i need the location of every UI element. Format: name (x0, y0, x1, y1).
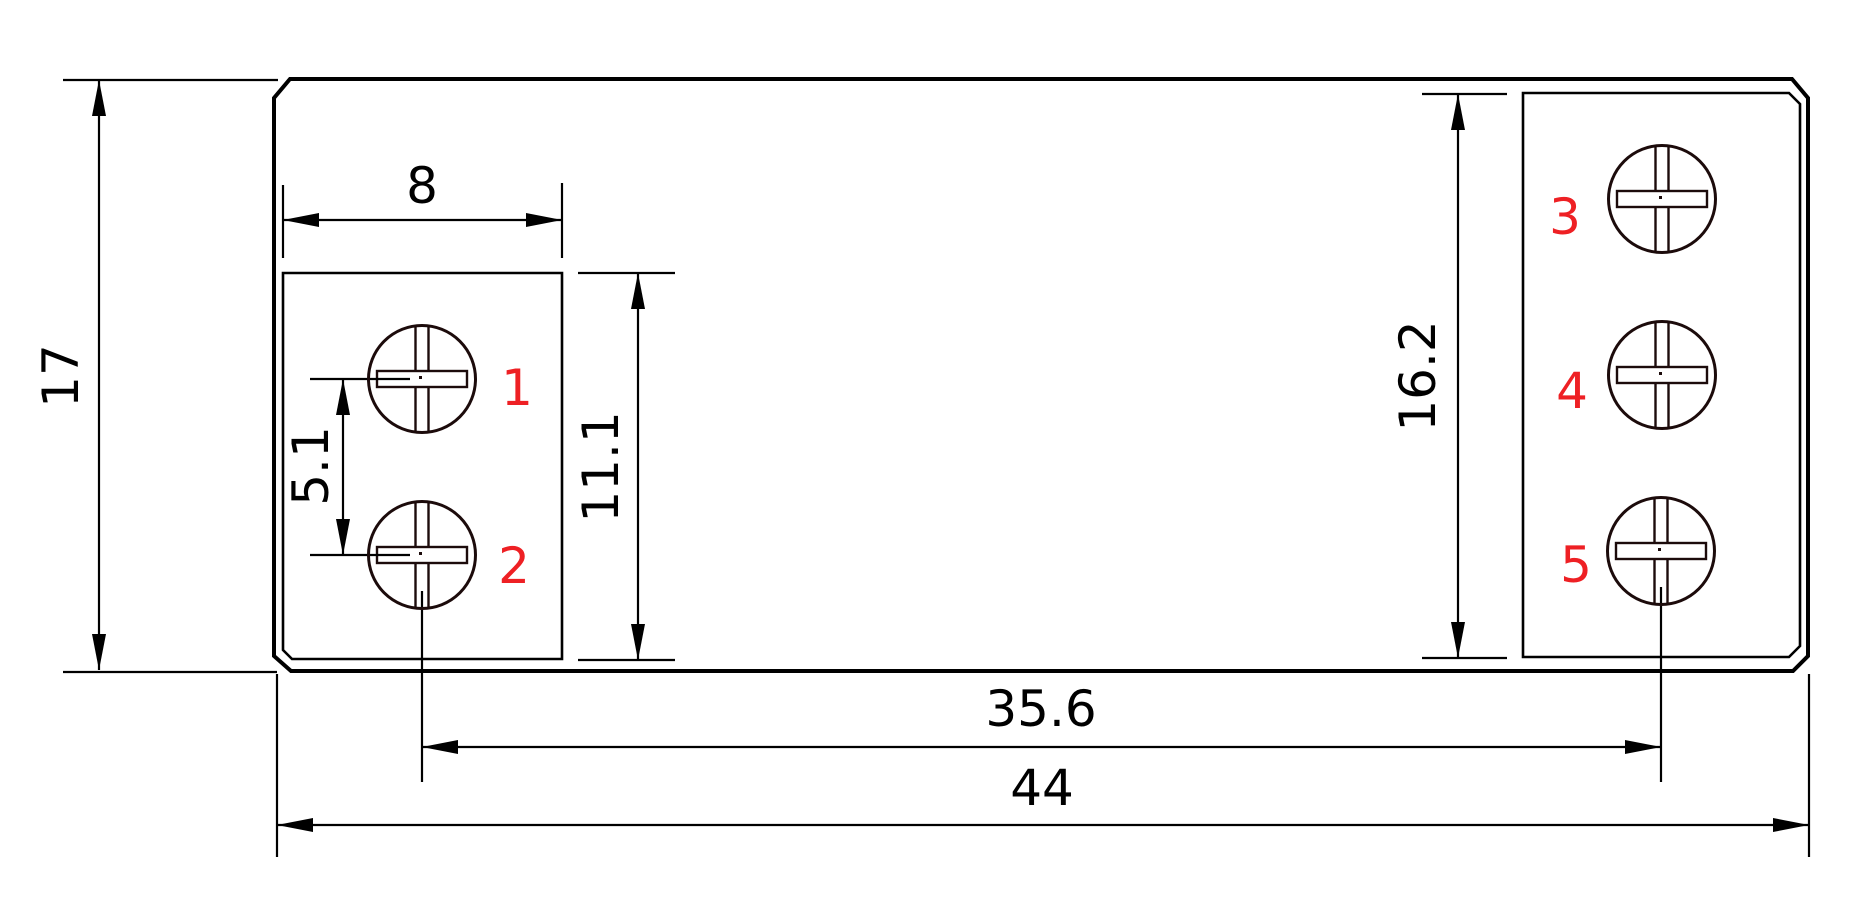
screw-3 (1609, 146, 1716, 253)
screw-2-centerline (310, 555, 422, 782)
screw-4 (1609, 322, 1716, 429)
dim-right-block-height: 16.2 (1389, 94, 1507, 658)
terminal-2-label: 2 (498, 537, 530, 595)
dim-overall-height: 17 (32, 80, 278, 672)
dim-left-block-height-label: 11.1 (572, 411, 630, 522)
dim-left-block-height: 11.1 (572, 273, 675, 660)
dimension-drawing: 17 8 5.1 11.1 16.2 35.6 44 (0, 0, 1866, 901)
dim-terminal-pitch-label: 5.1 (282, 426, 340, 506)
terminal-5-label: 5 (1560, 536, 1592, 594)
dim-terminal-span: 35.6 (422, 680, 1661, 754)
dim-left-block-width-label: 8 (406, 157, 438, 215)
dim-right-block-height-label: 16.2 (1389, 320, 1447, 431)
technical-drawing-canvas: 17 8 5.1 11.1 16.2 35.6 44 (0, 0, 1866, 901)
screw-1 (310, 326, 476, 433)
terminal-4-label: 4 (1556, 362, 1588, 420)
dim-terminal-pitch: 5.1 (282, 379, 350, 555)
dim-overall-width-label: 44 (1010, 759, 1074, 817)
dim-terminal-span-label: 35.6 (985, 680, 1096, 738)
terminal-3-label: 3 (1549, 188, 1581, 246)
dim-left-block-width: 8 (283, 157, 562, 258)
screw-5 (1608, 498, 1715, 783)
screw-2 (310, 502, 476, 783)
terminal-1-label: 1 (501, 359, 533, 417)
dim-overall-height-label: 17 (32, 344, 90, 408)
